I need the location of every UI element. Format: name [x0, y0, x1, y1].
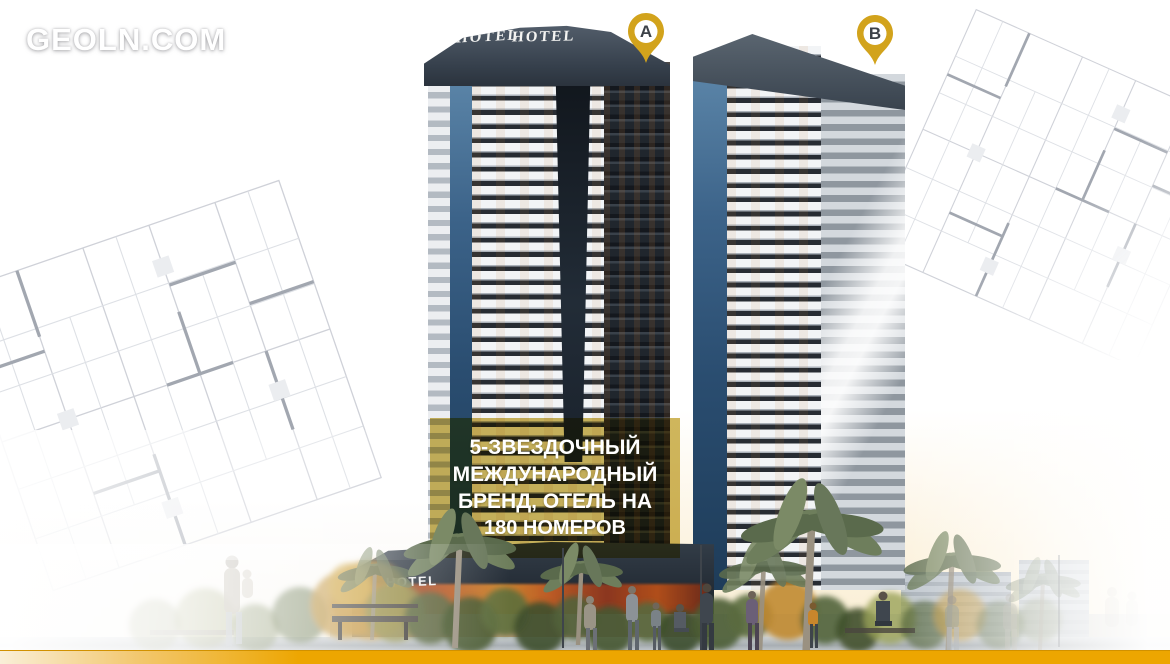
overlay-line: 180 НОМЕРОВ [484, 516, 626, 542]
white-fade-left [0, 544, 600, 652]
hotel-info-overlay: 5-ЗВЕЗДОЧНЫЙ МЕЖДУНАРОДНЫЙ БРЕНД, ОТЕЛЬ … [428, 420, 682, 556]
hero-render: HOTEL HOTEL HOTEL [0, 0, 1170, 664]
map-pin-b-icon[interactable]: B [855, 14, 895, 68]
white-fade-left-upper [0, 430, 430, 560]
overlay-line: 5-ЗВЕЗДОЧНЫЙ [469, 435, 640, 462]
overlay-line: МЕЖДУНАРОДНЫЙ [453, 462, 658, 489]
overlay-line: БРЕНД, ОТЕЛЬ НА [458, 489, 652, 516]
pedestrian [700, 584, 714, 656]
white-fade-right [890, 360, 1170, 652]
pin-a-label: A [626, 22, 666, 42]
logo[interactable]: GEOLN.COM [26, 22, 226, 58]
bottom-accent-bar [0, 650, 1170, 664]
pin-b-label: B [855, 24, 895, 44]
map-pin-a-icon[interactable]: A [626, 12, 666, 66]
